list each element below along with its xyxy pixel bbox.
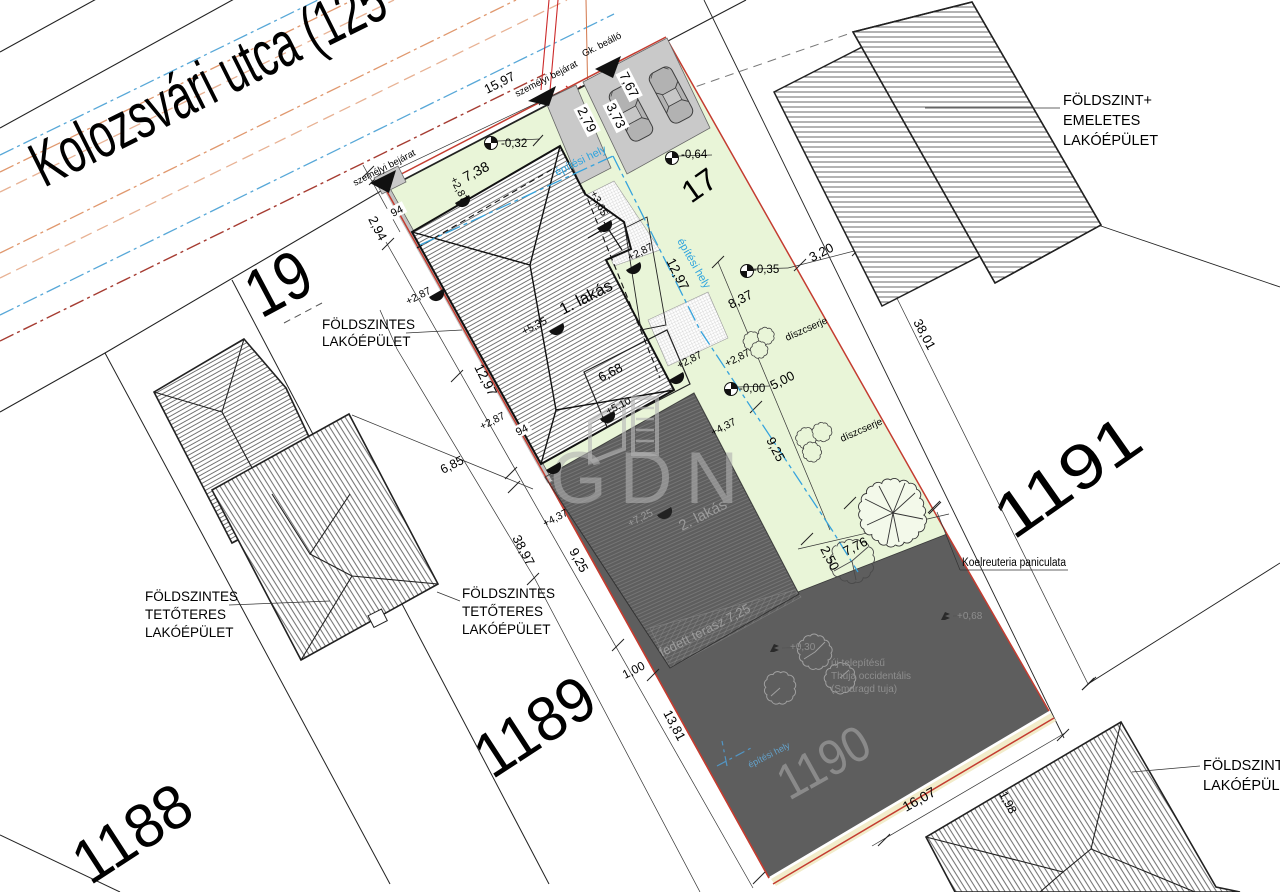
svg-text:LAKÓÉPÜLET: LAKÓÉPÜLET — [1203, 776, 1280, 794]
svg-text:EMELETES: EMELETES — [1063, 113, 1140, 129]
svg-text:Koelreuteria paniculata: Koelreuteria paniculata — [962, 557, 1067, 569]
svg-text:(Smaragd tuja): (Smaragd tuja) — [831, 684, 897, 695]
svg-text:+0,68: +0,68 — [957, 611, 983, 622]
svg-text:új telepítésű: új telepítésű — [831, 658, 885, 669]
svg-text:FÖLDSZINTES: FÖLDSZINTES — [322, 317, 415, 332]
svg-text:FÖLDSZINTES: FÖLDSZINTES — [1203, 756, 1280, 774]
svg-text:-0,00: -0,00 — [739, 383, 765, 395]
svg-text:+0,30: +0,30 — [790, 642, 816, 653]
svg-text:LAKÓÉPÜLET: LAKÓÉPÜLET — [322, 334, 411, 349]
svg-text:-0,32: -0,32 — [501, 138, 527, 150]
svg-text:FÖLDSZINTES: FÖLDSZINTES — [462, 586, 555, 601]
svg-text:-0,35: -0,35 — [753, 264, 779, 276]
svg-text:LAKÓÉPÜLET: LAKÓÉPÜLET — [462, 622, 551, 637]
svg-text:FÖLDSZINT+: FÖLDSZINT+ — [1063, 91, 1152, 109]
svg-text:FÖLDSZINTES: FÖLDSZINTES — [145, 589, 238, 604]
svg-text:TETŐTERES: TETŐTERES — [462, 604, 543, 619]
svg-text:-0,64: -0,64 — [681, 149, 708, 161]
svg-text:TETŐTERES: TETŐTERES — [145, 607, 226, 622]
svg-text:Thuja occidentális: Thuja occidentális — [831, 671, 911, 682]
svg-text:LAKÓÉPÜLET: LAKÓÉPÜLET — [145, 625, 234, 640]
svg-text:LAKÓÉPÜLET: LAKÓÉPÜLET — [1063, 131, 1158, 149]
